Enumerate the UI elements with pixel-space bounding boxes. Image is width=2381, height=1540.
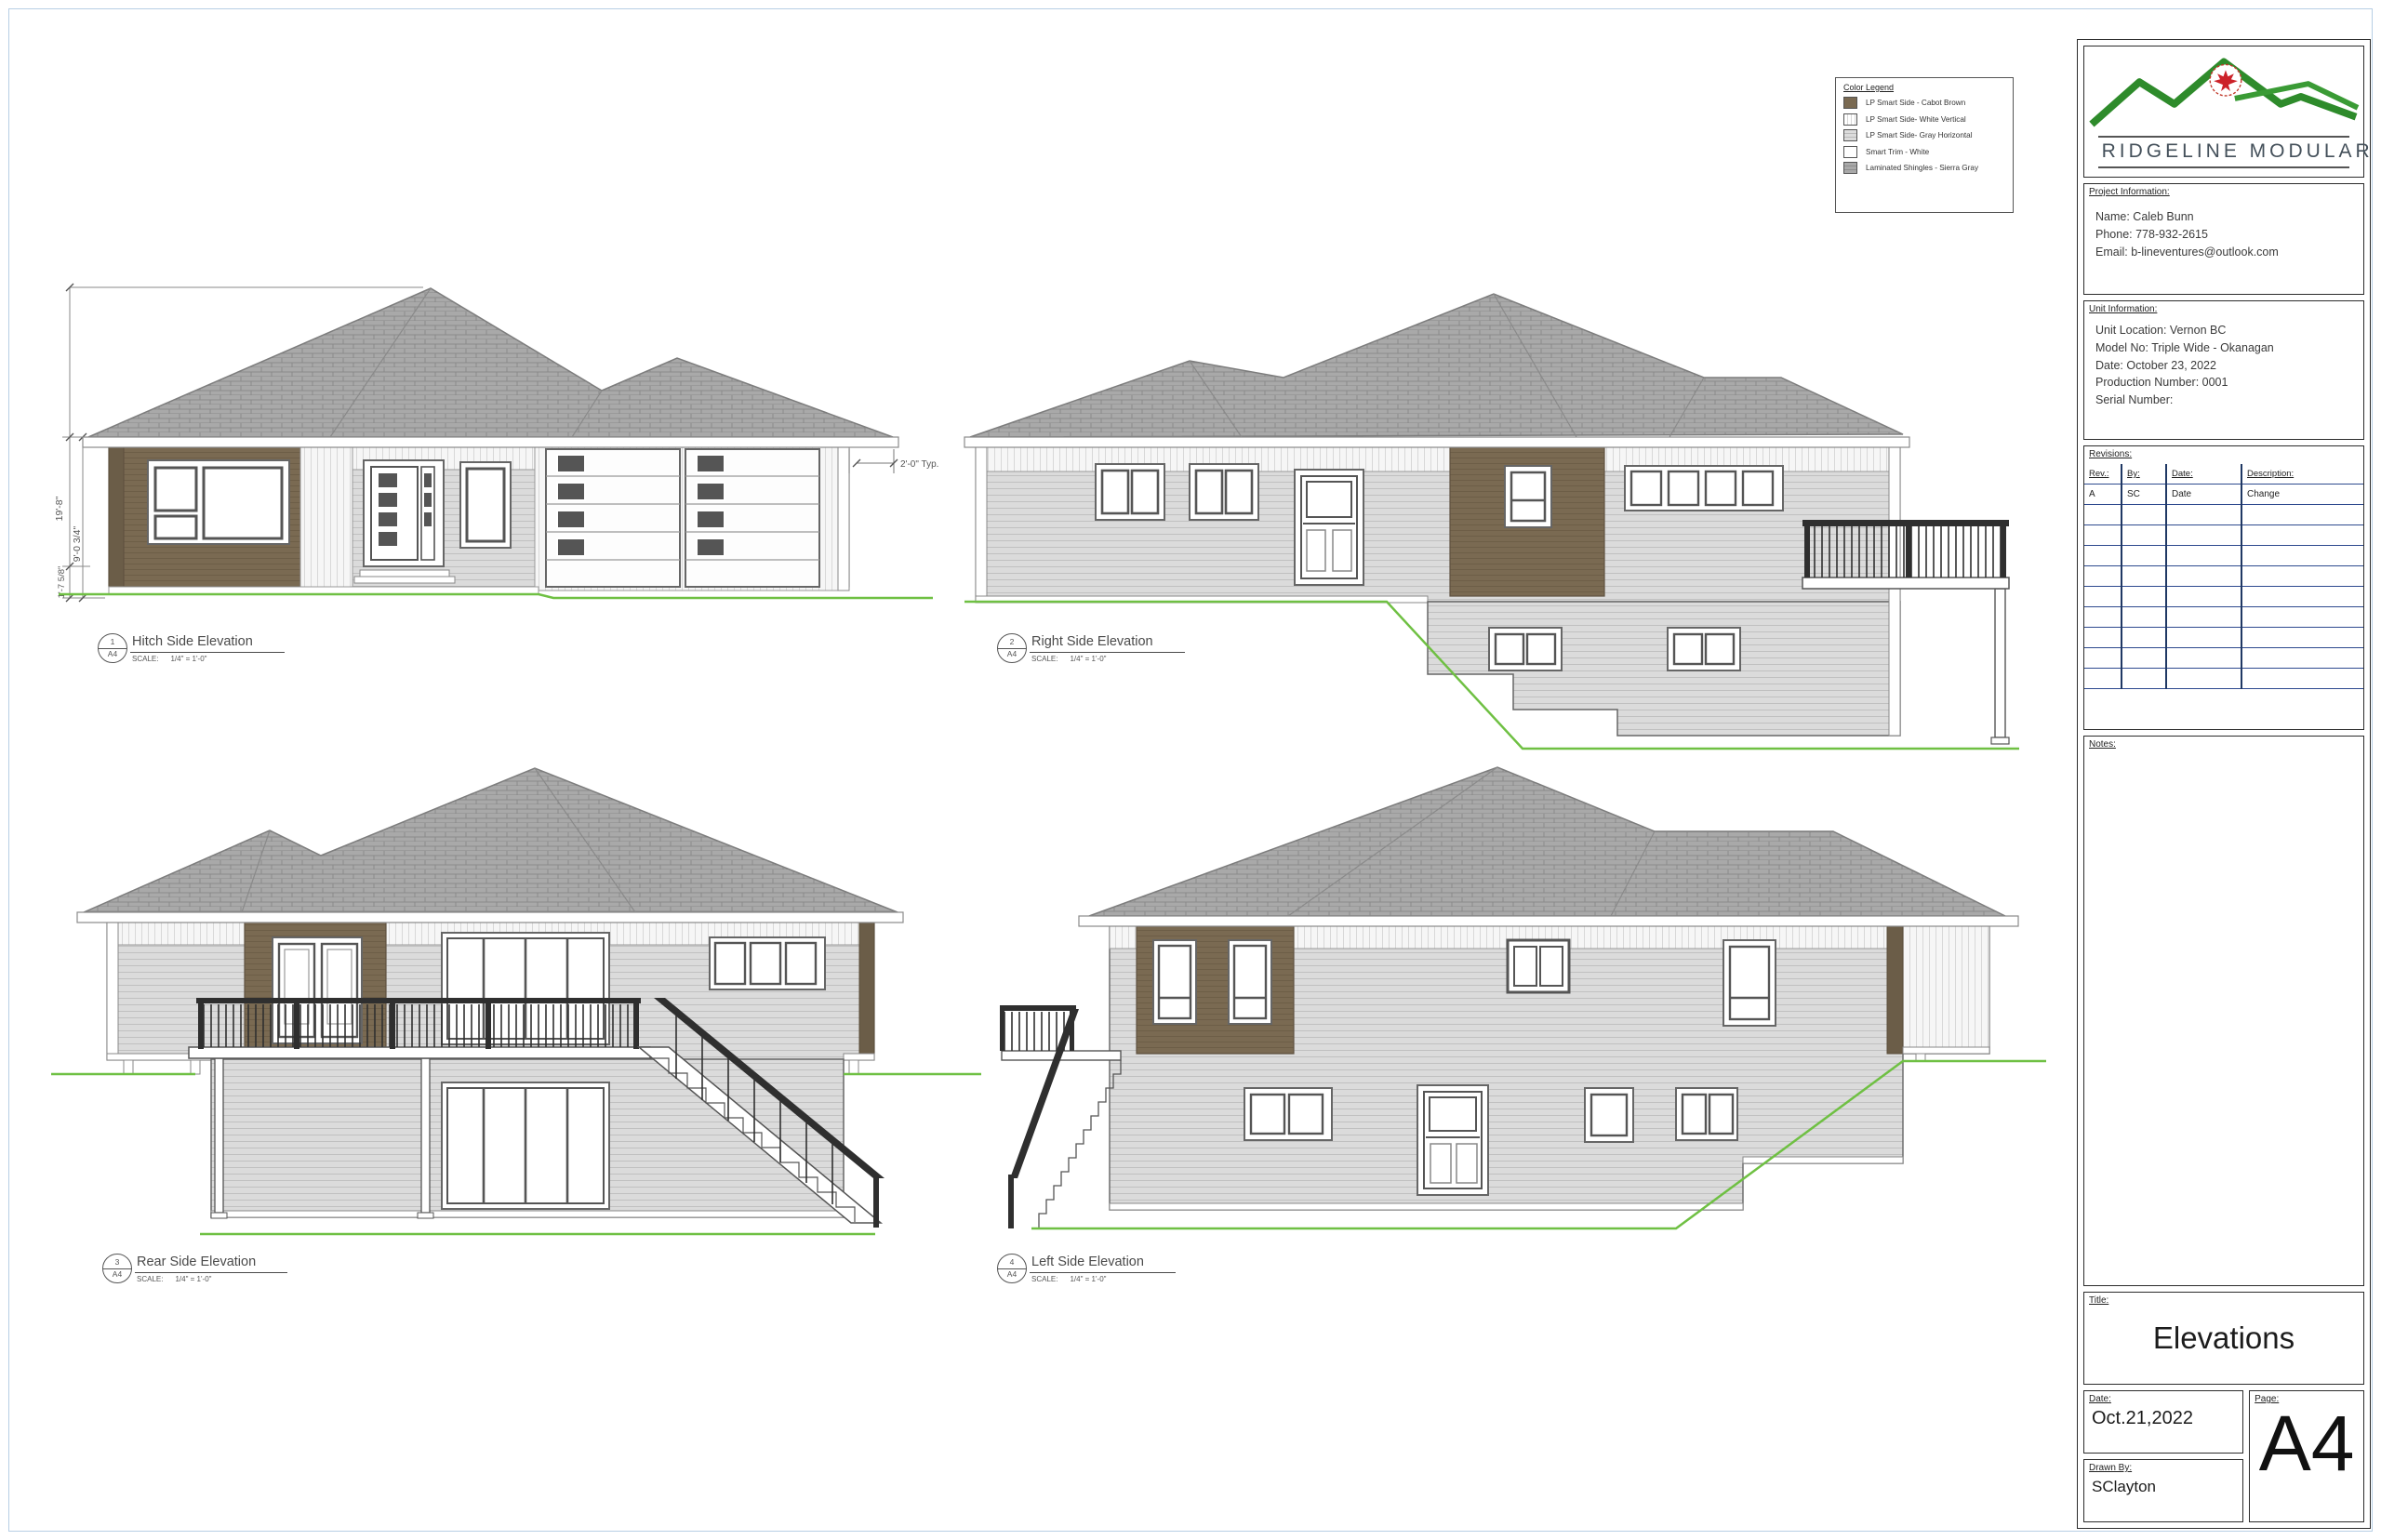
elevation-scale: SCALE: 1/4" = 1'-0"	[135, 1273, 287, 1283]
rev-value: A	[2084, 489, 2121, 499]
date-label: Date:	[2084, 1391, 2242, 1404]
brown-panel-window-2	[1229, 940, 1271, 1024]
roof	[964, 294, 1909, 447]
elevation-label-rear-side: 3 A4 Rear Side Elevation SCALE: 1/4" = 1…	[102, 1254, 287, 1283]
basement-window-2	[1668, 628, 1740, 670]
smart-trim-white-swatch	[1843, 146, 1857, 158]
dim-eave-overhang: 2'-0" Typ.	[900, 459, 938, 470]
legend-item-label: LP Smart Side - Cabot Brown	[1866, 99, 1965, 107]
eave-overhang-dimension	[849, 449, 898, 473]
revision-row: A SC Date Change	[2084, 485, 2363, 505]
drawn-by-section: Drawn By: SClayton	[2083, 1459, 2243, 1522]
scale-label: SCALE:	[137, 1275, 163, 1283]
col-date: Date:	[2165, 469, 2241, 479]
page-number: A4	[2250, 1407, 2363, 1481]
title-block: RIDGELINE MODULAR Project Information: N…	[2077, 39, 2371, 1529]
main-floor-window-right	[1723, 940, 1776, 1026]
col-description: Description:	[2241, 469, 2363, 479]
elevation-title: Hitch Side Elevation	[130, 634, 285, 653]
unit-production-number: Production Number: 0001	[2095, 374, 2363, 392]
detail-sheet-ref: A4	[108, 649, 117, 659]
unit-information-label: Unit Information:	[2084, 301, 2363, 314]
entry-side-window	[460, 462, 511, 548]
scale-label: SCALE:	[1031, 1275, 1057, 1283]
company-name: RIDGELINE MODULAR	[2098, 136, 2350, 168]
title-label: Title:	[2084, 1293, 2363, 1306]
legend-item: Laminated Shingles - Sierra Gray	[1843, 162, 2013, 174]
project-information-section: Project Information: Name: Caleb Bunn Ph…	[2083, 183, 2364, 295]
garage-door-left	[546, 449, 680, 587]
elevation-title: Rear Side Elevation	[135, 1255, 287, 1273]
revision-row-empty	[2084, 505, 2363, 525]
elevation-title: Left Side Elevation	[1030, 1255, 1176, 1273]
color-legend: Color Legend LP Smart Side - Cabot Brown…	[1835, 77, 2014, 213]
revisions-label: Revisions:	[2084, 446, 2363, 459]
drawn-by-label: Drawn By:	[2084, 1460, 2242, 1473]
scale-value: 1/4" = 1'-0"	[1070, 1275, 1106, 1283]
table-divider	[2165, 464, 2167, 689]
detail-number: 2	[998, 637, 1026, 648]
ridgeline-logo-icon	[2088, 50, 2360, 136]
col-by: By:	[2121, 469, 2165, 479]
elevation-label-left-side: 4 A4 Left Side Elevation SCALE: 1/4" = 1…	[997, 1254, 1176, 1283]
brown-panel-window-1	[1153, 940, 1196, 1024]
description-value: Change	[2241, 489, 2363, 499]
legend-item: Smart Trim - White	[1843, 146, 2013, 158]
scale-label: SCALE:	[132, 655, 158, 663]
roof	[83, 288, 898, 447]
main-floor-window-center	[1508, 940, 1569, 992]
project-email: Email: b-lineventures@outlook.com	[2095, 244, 2363, 261]
revision-row-empty	[2084, 628, 2363, 648]
detail-sheet-ref: A4	[113, 1269, 122, 1280]
dim-main-floor-height: 9'-0 3/4"	[72, 526, 83, 563]
date-value: Date	[2165, 489, 2241, 499]
revision-row-empty	[2084, 587, 2363, 607]
by-value: SC	[2121, 489, 2165, 499]
triple-window	[710, 937, 825, 989]
detail-bubble: 2 A4	[997, 633, 1027, 663]
unit-information-section: Unit Information: Unit Location: Vernon …	[2083, 300, 2364, 440]
basement-entry-door	[1417, 1085, 1488, 1195]
brown-accent-panel	[1450, 447, 1604, 596]
elevation-label-right-side: 2 A4 Right Side Elevation SCALE: 1/4" = …	[997, 633, 1185, 663]
unit-serial-number: Serial Number:	[2095, 392, 2363, 409]
detail-number: 1	[99, 637, 126, 648]
legend-item-label: LP Smart Side- Gray Horizontal	[1866, 131, 1973, 139]
scale-value: 1/4" = 1'-0"	[1070, 655, 1106, 663]
bedroom-window-2	[1190, 464, 1258, 520]
scale-label: SCALE:	[1031, 655, 1057, 663]
color-legend-title: Color Legend	[1843, 83, 2013, 92]
elevation-title: Right Side Elevation	[1030, 634, 1185, 653]
sliding-glass-door-basement	[442, 1082, 609, 1209]
scale-value: 1/4" = 1'-0"	[175, 1275, 211, 1283]
scale-value: 1/4" = 1'-0"	[170, 655, 206, 663]
elevation-label-hitch-side: 1 A4 Hitch Side Elevation SCALE: 1/4" = …	[98, 633, 285, 663]
unit-location: Unit Location: Vernon BC	[2095, 322, 2363, 339]
notes-section: Notes:	[2083, 736, 2364, 1286]
table-divider	[2121, 464, 2122, 689]
basement-window-left	[1244, 1088, 1332, 1140]
rear-side-elevation-drawing	[51, 758, 981, 1265]
white-vertical-swatch	[1843, 113, 1857, 126]
detail-bubble: 3 A4	[102, 1254, 132, 1283]
elevation-scale: SCALE: 1/4" = 1'-0"	[130, 653, 285, 663]
unit-date: Date: October 23, 2022	[2095, 357, 2363, 375]
sheet-title-section: Title: Elevations	[2083, 1292, 2364, 1385]
company-logo-box: RIDGELINE MODULAR	[2083, 46, 2364, 178]
title-block-footer: Date: Oct.21,2022 Drawn By: SClayton Pag…	[2083, 1390, 2364, 1522]
revision-row-empty	[2084, 648, 2363, 669]
revisions-header-row: Rev.: By: Date: Description:	[2084, 464, 2363, 485]
garage-door-right	[685, 449, 819, 587]
revision-row-empty	[2084, 566, 2363, 587]
unit-model: Model No: Triple Wide - Okanagan	[2095, 339, 2363, 357]
legend-item: LP Smart Side- Gray Horizontal	[1843, 129, 2013, 141]
elevation-scale: SCALE: 1/4" = 1'-0"	[1030, 1273, 1176, 1283]
legend-item: LP Smart Side- White Vertical	[1843, 113, 2013, 126]
notes-label: Notes:	[2084, 737, 2363, 750]
right-side-elevation-drawing	[963, 274, 2069, 767]
left-side-elevation-drawing	[986, 758, 2074, 1265]
date-value: Oct.21,2022	[2084, 1404, 2242, 1429]
entry-door	[354, 460, 455, 583]
dim-overall-height: 19'-8"	[54, 496, 65, 521]
living-room-window	[148, 460, 289, 544]
legend-item-label: Smart Trim - White	[1866, 148, 1929, 156]
detail-number: 4	[998, 1257, 1026, 1268]
window-band	[1625, 466, 1783, 511]
sierra-gray-swatch	[1843, 162, 1857, 174]
revision-row-empty	[2084, 669, 2363, 689]
roof	[1079, 767, 2018, 926]
col-rev: Rev.:	[2084, 469, 2121, 479]
roof	[77, 768, 903, 923]
basement-window-small	[1585, 1088, 1633, 1142]
legend-item-label: Laminated Shingles - Sierra Gray	[1866, 164, 1978, 172]
gray-horizontal-swatch	[1843, 129, 1857, 141]
detail-bubble: 1 A4	[98, 633, 127, 663]
ground-line	[59, 594, 933, 598]
revision-row-empty	[2084, 525, 2363, 546]
revisions-table: Rev.: By: Date: Description: A SC Date C…	[2084, 464, 2363, 689]
table-divider	[2241, 464, 2242, 689]
sheet-title: Elevations	[2084, 1321, 2363, 1356]
detail-sheet-ref: A4	[1007, 1269, 1017, 1280]
detail-bubble: 4 A4	[997, 1254, 1027, 1283]
legend-item-label: LP Smart Side- White Vertical	[1866, 115, 1966, 124]
date-section: Date: Oct.21,2022	[2083, 1390, 2243, 1454]
drawing-sheet: 19'-8" 9'-0 3/4" 1'-7 5/8"	[0, 0, 2381, 1540]
rear-stairs	[1000, 1005, 1121, 1228]
page-section: Page: A4	[2249, 1390, 2364, 1522]
detail-number: 3	[103, 1257, 131, 1268]
project-information-label: Project Information:	[2084, 184, 2363, 197]
elevation-scale: SCALE: 1/4" = 1'-0"	[1030, 653, 1185, 663]
detail-sheet-ref: A4	[1007, 649, 1017, 659]
side-entry-door	[1295, 470, 1363, 585]
bedroom-window-1	[1096, 464, 1164, 520]
cabot-brown-swatch	[1843, 97, 1857, 109]
project-name: Name: Caleb Bunn	[2095, 208, 2363, 226]
revisions-section: Revisions: Rev.: By: Date: Description: …	[2083, 445, 2364, 730]
basement-window-1	[1489, 628, 1562, 670]
project-phone: Phone: 778-932-2615	[2095, 226, 2363, 244]
revision-row-empty	[2084, 546, 2363, 566]
hitch-side-elevation-drawing: 19'-8" 9'-0 3/4" 1'-7 5/8"	[51, 274, 944, 609]
drawn-by-value: SClayton	[2084, 1473, 2242, 1496]
basement-window-right	[1676, 1088, 1737, 1140]
revision-row-empty	[2084, 607, 2363, 628]
legend-item: LP Smart Side - Cabot Brown	[1843, 97, 2013, 109]
